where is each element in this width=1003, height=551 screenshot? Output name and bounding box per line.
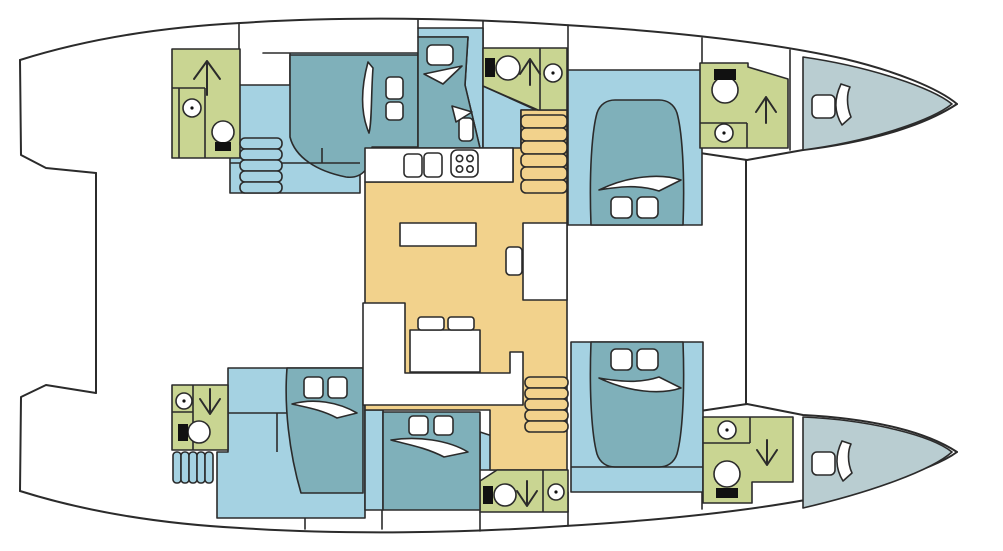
pillow-icon: [328, 377, 347, 398]
step-tread: [240, 160, 282, 171]
pillow-icon: [812, 95, 835, 118]
port-hull-companionway-stairs: [521, 115, 567, 193]
stove-burner-icon: [456, 166, 462, 172]
stove-burner-icon: [467, 166, 473, 172]
galley-sink-icon: [404, 154, 422, 177]
toilet-icon: [212, 121, 234, 143]
step-tread: [173, 452, 181, 483]
stbd-aft-cabin-steps: [173, 452, 213, 483]
stove-icon: [451, 150, 478, 177]
step-tread: [240, 182, 282, 193]
pillow-icon: [637, 349, 658, 370]
nav-seat-icon: [506, 247, 522, 275]
galley-sink-icon: [424, 153, 442, 177]
toilet-tank-icon: [483, 486, 493, 504]
bottom-hull-transom: [20, 385, 96, 491]
port-fwd-bathroom: [700, 63, 788, 148]
step-tread: [240, 171, 282, 182]
stove-burner-icon: [467, 155, 473, 161]
seat-cushion-icon: [448, 317, 474, 330]
pillow-icon: [611, 197, 632, 218]
pillow-icon: [386, 77, 403, 99]
stair-tread: [521, 154, 567, 167]
pillow-icon: [611, 349, 632, 370]
stair-tread: [521, 115, 567, 128]
toilet-icon: [496, 56, 520, 80]
basin-drain-icon: [554, 490, 557, 493]
stair-tread: [521, 180, 567, 193]
stair-tread: [521, 141, 567, 154]
toilet-icon: [188, 421, 210, 443]
step-tread: [240, 149, 282, 160]
toilet-icon: [714, 461, 740, 487]
stair-tread: [521, 128, 567, 141]
basin-drain-icon: [722, 131, 725, 134]
stair-tread: [525, 421, 568, 432]
toilet-tank-icon: [716, 488, 738, 498]
basin-drain-icon: [182, 399, 185, 402]
catamaran-floorplan: [0, 0, 1003, 551]
stair-tread: [525, 388, 568, 399]
stbd-aft-double-berth: [286, 368, 363, 493]
nav-station-icon: [523, 223, 567, 300]
toilet-icon: [494, 484, 516, 506]
step-tread: [205, 452, 213, 483]
toilet-tank-icon: [485, 58, 495, 77]
stair-tread: [525, 410, 568, 421]
step-tread: [240, 138, 282, 149]
pillow-icon: [427, 45, 453, 65]
stair-tread: [521, 167, 567, 180]
top-hull-transom: [20, 60, 96, 173]
step-tread: [197, 452, 205, 483]
pillow-icon: [459, 118, 473, 141]
basin-drain-icon: [725, 428, 728, 431]
stbd-mid-double-berth: [383, 412, 480, 510]
basin-drain-icon: [190, 106, 193, 109]
port-aft-cabin-steps: [240, 138, 282, 193]
step-tread: [189, 452, 197, 483]
toilet-tank-icon: [215, 142, 231, 151]
stove-burner-icon: [456, 155, 462, 161]
seat-cushion-icon: [418, 317, 444, 330]
toilet-tank-icon: [714, 69, 736, 80]
dining-table-icon: [410, 330, 480, 372]
galley-sideboard-icon: [400, 223, 476, 246]
stbd-hull-companionway-stairs: [525, 377, 568, 432]
pillow-icon: [812, 452, 835, 475]
toilet-tank-icon: [178, 424, 188, 441]
stair-tread: [525, 377, 568, 388]
basin-drain-icon: [551, 71, 554, 74]
step-tread: [181, 452, 189, 483]
stbd-mid-cabin-floor-strip: [365, 410, 383, 510]
pillow-icon: [434, 416, 453, 435]
stair-tread: [525, 399, 568, 410]
floorplan-svg: [0, 0, 1003, 551]
pillow-icon: [637, 197, 658, 218]
pillow-icon: [409, 416, 428, 435]
toilet-icon: [712, 77, 738, 103]
pillow-icon: [304, 377, 323, 398]
pillow-icon: [386, 102, 403, 120]
